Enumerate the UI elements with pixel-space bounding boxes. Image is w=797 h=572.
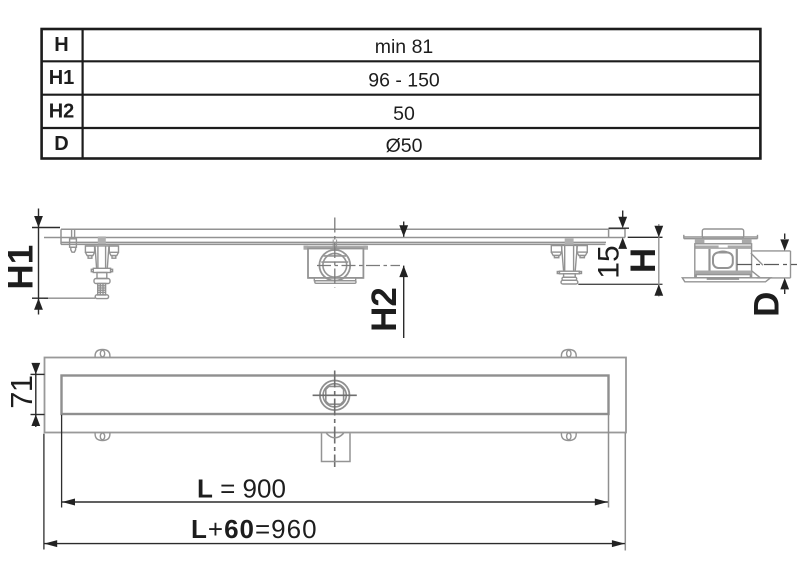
svg-text:D: D bbox=[54, 133, 68, 155]
svg-text:H: H bbox=[624, 248, 663, 273]
svg-text:H2: H2 bbox=[49, 101, 75, 123]
svg-text:L+60=960: L+60=960 bbox=[191, 514, 318, 544]
svg-text:L = 900: L = 900 bbox=[197, 473, 286, 503]
svg-text:H: H bbox=[54, 34, 68, 56]
svg-text:min 81: min 81 bbox=[375, 36, 434, 58]
svg-text:96 - 150: 96 - 150 bbox=[368, 70, 440, 92]
svg-text:H2: H2 bbox=[365, 287, 404, 332]
svg-text:50: 50 bbox=[393, 103, 415, 125]
svg-text:Ø50: Ø50 bbox=[386, 135, 423, 157]
svg-text:71: 71 bbox=[4, 376, 39, 409]
svg-text:15: 15 bbox=[593, 245, 626, 278]
svg-text:H1: H1 bbox=[2, 245, 41, 290]
svg-text:H1: H1 bbox=[49, 67, 75, 89]
svg-text:D: D bbox=[747, 292, 786, 317]
